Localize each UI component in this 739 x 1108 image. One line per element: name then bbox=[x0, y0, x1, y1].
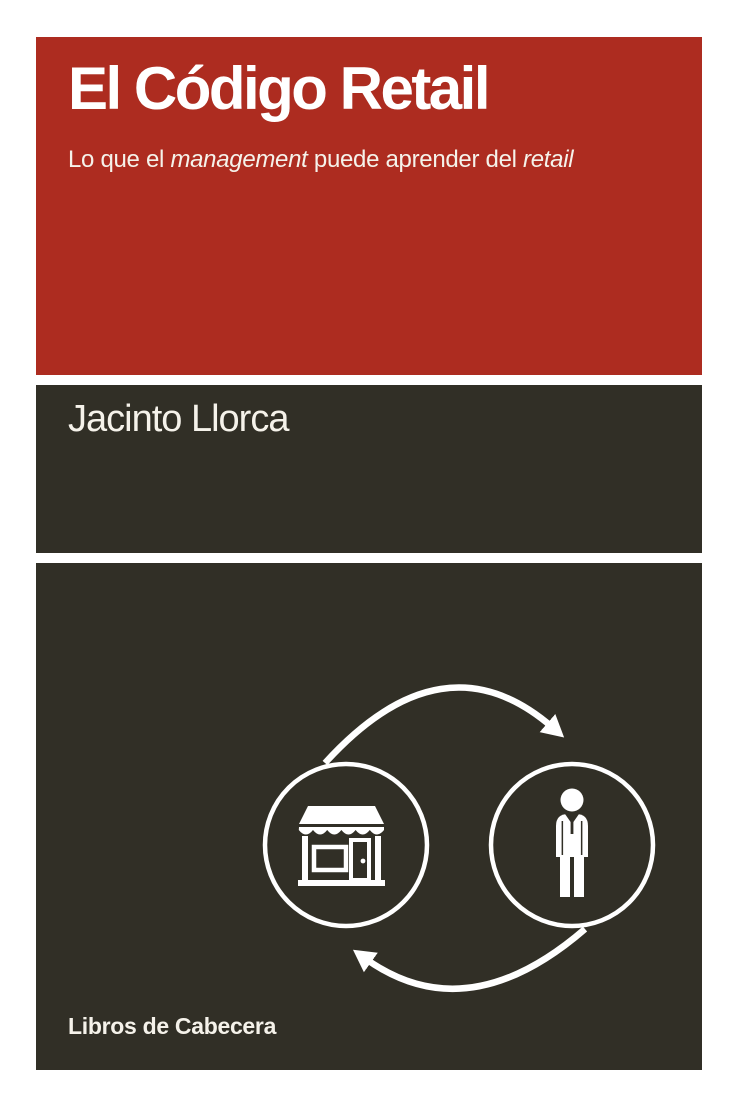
cycle-arrow-bottom bbox=[366, 929, 585, 989]
subtitle-italic-management: management bbox=[170, 146, 307, 173]
book-title: El Código Retail bbox=[68, 55, 672, 122]
cycle-arrow-top bbox=[325, 688, 552, 763]
book-cover: El Código Retail Lo que el management pu… bbox=[0, 0, 739, 1108]
title-block: El Código Retail Lo que el management pu… bbox=[36, 37, 702, 375]
subtitle-segment: puede aprender del bbox=[308, 146, 524, 173]
subtitle-segment: Lo que el bbox=[68, 146, 170, 173]
author-band: Jacinto Llorca bbox=[36, 385, 702, 553]
publisher-logo: Libros de Cabecera bbox=[68, 1013, 276, 1040]
author-name: Jacinto Llorca bbox=[68, 397, 288, 443]
storefront-icon bbox=[298, 806, 385, 886]
illustration-block: Libros de Cabecera bbox=[36, 563, 702, 1070]
subtitle-italic-retail: retail bbox=[523, 146, 573, 173]
businessman-icon bbox=[556, 789, 588, 898]
retail-cycle-diagram bbox=[36, 563, 702, 1070]
book-subtitle: Lo que el management puede aprender del … bbox=[68, 146, 672, 175]
